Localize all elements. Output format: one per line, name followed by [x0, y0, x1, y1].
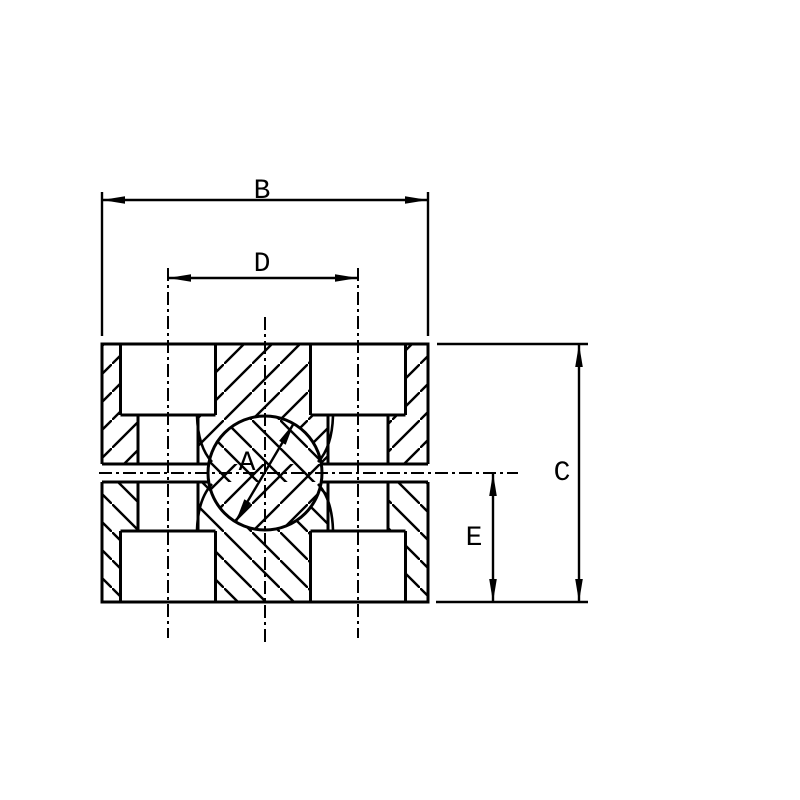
dimension-label-d: D	[254, 249, 271, 280]
technical-drawing-pipe-clamp-section: B D C E A	[0, 0, 800, 800]
dimension-label-e: E	[466, 523, 483, 554]
dimension-label-a: A	[239, 448, 256, 479]
dimension-label-c: C	[554, 458, 571, 489]
dimension-label-b: B	[254, 176, 271, 207]
